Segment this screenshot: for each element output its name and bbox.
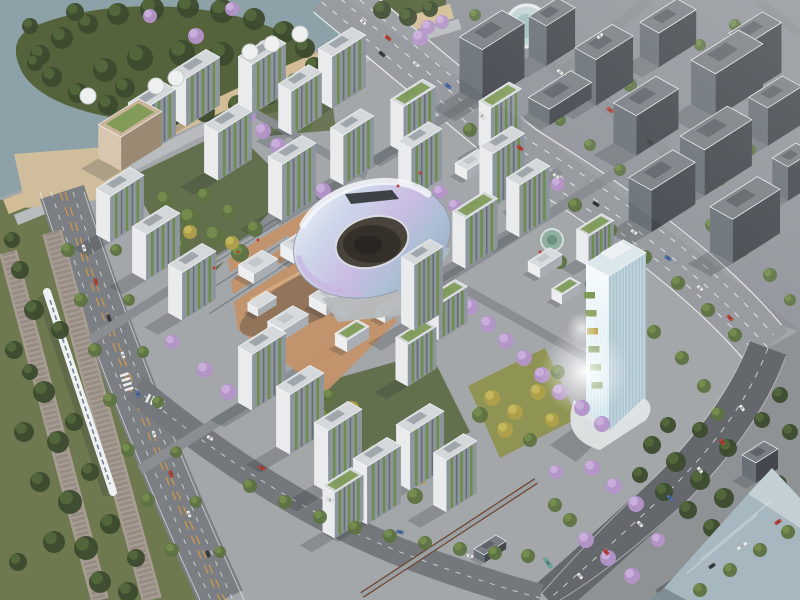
facade-green-strip bbox=[452, 296, 455, 330]
residential-tower-sw-face bbox=[168, 265, 182, 321]
tree-highlight bbox=[422, 21, 430, 29]
tree-highlight bbox=[552, 178, 560, 186]
circular-garden-center bbox=[547, 235, 557, 245]
facade-green-strip bbox=[348, 484, 351, 528]
facade-green-strip bbox=[304, 152, 306, 206]
park-tree bbox=[4, 232, 20, 248]
park-tree bbox=[74, 536, 98, 560]
facade-green-strip bbox=[191, 76, 194, 122]
facade-green-strip bbox=[486, 206, 488, 254]
tree-highlight bbox=[434, 186, 442, 194]
red-signage-accent bbox=[397, 185, 400, 188]
tree-highlight bbox=[419, 537, 427, 545]
residential-tower-sw-face bbox=[238, 347, 252, 411]
park-tree bbox=[5, 341, 23, 359]
street-tree bbox=[110, 244, 122, 256]
facade-green-strip bbox=[164, 98, 166, 142]
tree-highlight bbox=[256, 124, 265, 133]
street-tree bbox=[123, 294, 135, 306]
tree-highlight bbox=[704, 520, 714, 530]
facade-green-strip bbox=[427, 257, 430, 321]
tree-highlight bbox=[680, 502, 690, 512]
facade-green-strip bbox=[202, 69, 205, 115]
tree-highlight bbox=[104, 394, 112, 402]
residential-tower-sw-face bbox=[204, 125, 218, 181]
street-tree bbox=[222, 204, 238, 220]
facade-green-strip bbox=[529, 180, 531, 230]
facade-green-strip bbox=[357, 127, 360, 175]
park-tree bbox=[43, 531, 65, 553]
tree-highlight bbox=[633, 468, 642, 477]
tree-highlight bbox=[423, 2, 432, 11]
park-tree bbox=[399, 8, 417, 26]
facade-green-strip bbox=[448, 299, 450, 333]
park-tree bbox=[93, 58, 117, 82]
tree-highlight bbox=[531, 385, 540, 394]
facade-green-strip bbox=[367, 121, 370, 169]
facade-green-strip bbox=[339, 490, 342, 534]
facade-green-strip bbox=[337, 54, 340, 104]
facade-green-strip bbox=[394, 450, 397, 506]
facade-green-strip bbox=[426, 334, 428, 374]
tree-highlight bbox=[575, 401, 584, 410]
park-tree bbox=[66, 3, 84, 21]
facade-green-strip bbox=[306, 385, 309, 443]
tree-highlight bbox=[128, 550, 138, 560]
facade-green-strip bbox=[151, 232, 154, 276]
masterplan-aerial-rendering bbox=[0, 0, 800, 600]
street-tree bbox=[165, 543, 179, 557]
tree-highlight bbox=[95, 59, 108, 72]
facade-green-strip bbox=[293, 158, 295, 212]
street-tree bbox=[463, 123, 477, 137]
facade-green-strip bbox=[418, 263, 421, 327]
street-tree bbox=[141, 493, 155, 507]
tree-highlight bbox=[454, 543, 462, 551]
tree-highlight bbox=[226, 3, 234, 11]
tree-highlight bbox=[481, 317, 490, 326]
tree-highlight bbox=[23, 365, 32, 374]
tree-highlight bbox=[6, 342, 16, 352]
facade-green-strip bbox=[423, 260, 425, 324]
facade-green-strip bbox=[425, 140, 428, 188]
street-tree bbox=[584, 139, 596, 151]
street-tree bbox=[247, 221, 263, 237]
street-tree bbox=[711, 407, 725, 421]
residential-tower-sw-face bbox=[276, 387, 290, 455]
tree-highlight bbox=[470, 10, 477, 17]
autumn-tree bbox=[225, 236, 239, 250]
facade-green-strip bbox=[389, 454, 391, 510]
facade-green-strip bbox=[115, 194, 118, 238]
tree-highlight bbox=[585, 461, 594, 470]
street-tree bbox=[407, 488, 423, 504]
tree-highlight bbox=[546, 414, 554, 422]
street-tree bbox=[723, 563, 737, 577]
street-tree bbox=[523, 433, 537, 447]
street-tree bbox=[383, 529, 397, 543]
tree-highlight bbox=[473, 408, 482, 417]
facade-green-strip bbox=[378, 460, 380, 516]
park-tree bbox=[98, 95, 118, 115]
aerial-render-stage bbox=[0, 0, 800, 600]
street-tree bbox=[763, 268, 777, 282]
street-tree bbox=[614, 164, 626, 176]
tree-highlight bbox=[754, 544, 762, 552]
park-tree bbox=[81, 463, 99, 481]
facade-green-strip bbox=[503, 148, 505, 200]
facade-green-strip bbox=[363, 124, 365, 172]
facade-green-strip bbox=[344, 487, 346, 531]
facade-green-strip bbox=[173, 218, 176, 262]
red-signage-accent bbox=[539, 251, 542, 254]
facade-green-strip bbox=[353, 482, 355, 526]
park-tree bbox=[42, 67, 62, 87]
park-tree bbox=[47, 431, 69, 453]
tree-highlight bbox=[16, 423, 27, 434]
tree-highlight bbox=[314, 511, 322, 519]
tree-highlight bbox=[223, 205, 232, 214]
tree-highlight bbox=[661, 418, 670, 427]
tree-highlight bbox=[66, 414, 76, 424]
tree-highlight bbox=[198, 189, 207, 198]
facade-green-strip bbox=[309, 148, 312, 202]
residential-tower-sw-face bbox=[401, 258, 414, 331]
facade-green-strip bbox=[383, 457, 386, 513]
facade-green-strip bbox=[295, 392, 298, 450]
jacaranda-tree bbox=[594, 416, 610, 432]
tree-highlight bbox=[248, 222, 257, 231]
tree-highlight bbox=[144, 10, 152, 18]
tree-highlight bbox=[729, 329, 737, 337]
street-tree bbox=[88, 343, 102, 357]
tree-highlight bbox=[384, 530, 392, 538]
facade-green-strip bbox=[357, 479, 360, 523]
tree-highlight bbox=[45, 532, 57, 544]
tree-highlight bbox=[773, 388, 782, 397]
red-signage-accent bbox=[237, 251, 240, 254]
facade-green-strip bbox=[274, 342, 276, 396]
tree-highlight bbox=[785, 295, 792, 302]
tree-highlight bbox=[120, 583, 131, 594]
tree-highlight bbox=[702, 304, 710, 312]
park-tree bbox=[107, 3, 129, 25]
tree-highlight bbox=[91, 572, 103, 584]
facade-green-strip bbox=[274, 52, 276, 100]
park-tree bbox=[9, 553, 27, 571]
tree-highlight bbox=[522, 550, 530, 558]
facade-green-strip bbox=[301, 86, 303, 128]
ring-arena-pit bbox=[354, 236, 382, 254]
jacaranda-tree bbox=[651, 533, 665, 547]
facade-green-strip bbox=[456, 455, 458, 505]
facade-green-strip bbox=[435, 134, 438, 182]
tree-highlight bbox=[52, 322, 62, 332]
tree-highlight bbox=[245, 9, 257, 21]
facade-green-strip bbox=[432, 420, 434, 476]
facade-green-strip bbox=[198, 263, 201, 309]
tree-highlight bbox=[166, 544, 174, 552]
park-tree bbox=[772, 387, 788, 403]
jacaranda-tree bbox=[220, 384, 236, 400]
tree-highlight bbox=[607, 479, 616, 488]
tree-highlight bbox=[129, 46, 143, 60]
tree-highlight bbox=[75, 294, 83, 302]
tree-highlight bbox=[275, 22, 287, 34]
tree-highlight bbox=[413, 31, 422, 40]
tree-highlight bbox=[226, 237, 234, 245]
tree-highlight bbox=[5, 233, 14, 242]
street-tree bbox=[701, 303, 715, 317]
street-tree bbox=[697, 379, 711, 393]
tree-highlight bbox=[12, 262, 22, 272]
park-tree bbox=[373, 1, 391, 19]
jacaranda-tree bbox=[435, 15, 449, 29]
facade-green-strip bbox=[234, 123, 237, 169]
facade-green-strip bbox=[461, 291, 464, 325]
beach-canopy-umbrella bbox=[264, 36, 280, 52]
park-tree bbox=[33, 381, 55, 403]
residential-tower-sw-face bbox=[268, 157, 282, 221]
tree-highlight bbox=[111, 245, 118, 252]
park-tree bbox=[754, 412, 770, 428]
autumn-tree bbox=[545, 413, 559, 427]
tree-highlight bbox=[783, 425, 792, 434]
street-tree bbox=[781, 525, 795, 539]
park-tree bbox=[243, 8, 265, 30]
facade-green-strip bbox=[162, 225, 165, 269]
tree-highlight bbox=[10, 554, 20, 564]
street-tree bbox=[693, 583, 707, 597]
tree-highlight bbox=[221, 385, 230, 394]
tree-highlight bbox=[138, 347, 145, 354]
facade-green-strip bbox=[298, 155, 301, 209]
tree-highlight bbox=[109, 4, 121, 16]
facade-green-strip bbox=[470, 216, 473, 264]
tree-highlight bbox=[100, 96, 111, 107]
tree-highlight bbox=[215, 547, 222, 554]
facade-green-strip bbox=[263, 348, 265, 402]
tree-highlight bbox=[517, 351, 526, 360]
facade-green-strip bbox=[412, 342, 415, 382]
street-tree bbox=[121, 443, 135, 457]
tree-highlight bbox=[668, 453, 679, 464]
tree-highlight bbox=[279, 496, 287, 504]
street-tree bbox=[152, 396, 164, 408]
street-tree bbox=[784, 294, 796, 306]
tree-highlight bbox=[585, 140, 592, 147]
park-tree bbox=[115, 78, 135, 98]
jacaranda-tree bbox=[225, 2, 239, 16]
facade-green-strip bbox=[533, 177, 536, 227]
facade-green-strip bbox=[430, 331, 433, 371]
jacaranda-tree bbox=[480, 316, 496, 332]
facade-green-strip bbox=[157, 228, 159, 272]
facade-green-strip bbox=[168, 222, 170, 266]
facade-green-strip bbox=[213, 62, 216, 108]
facade-green-strip bbox=[415, 430, 418, 486]
tree-highlight bbox=[549, 499, 557, 507]
facade-green-strip bbox=[460, 452, 463, 502]
residential-tower-sw-face bbox=[278, 84, 291, 135]
tree-highlight bbox=[648, 326, 656, 334]
tree-highlight bbox=[60, 491, 73, 504]
jacaranda-tree bbox=[412, 30, 428, 46]
tree-highlight bbox=[316, 184, 325, 193]
tree-highlight bbox=[171, 41, 185, 55]
facade-green-strip bbox=[132, 184, 134, 228]
street-tree bbox=[671, 276, 685, 290]
facade-green-strip bbox=[229, 126, 231, 172]
tree-highlight bbox=[271, 139, 280, 148]
street-tree bbox=[348, 521, 362, 535]
street-tree bbox=[418, 536, 432, 550]
park-tree bbox=[127, 45, 153, 71]
residential-tower-sw-face bbox=[452, 212, 465, 269]
tree-highlight bbox=[198, 363, 207, 372]
tree-highlight bbox=[189, 29, 198, 38]
tree-highlight bbox=[191, 497, 198, 504]
facade-green-strip bbox=[476, 213, 478, 261]
tree-highlight bbox=[349, 522, 357, 530]
park-tree bbox=[666, 452, 686, 472]
facade-green-strip bbox=[451, 458, 454, 508]
tree-highlight bbox=[724, 564, 732, 572]
facade-green-strip bbox=[311, 80, 313, 122]
residential-tower-sw-face bbox=[433, 453, 446, 512]
facade-green-strip bbox=[359, 40, 362, 90]
jacaranda-tree bbox=[143, 9, 157, 23]
facade-green-strip bbox=[315, 77, 318, 119]
jacaranda-tree bbox=[516, 350, 532, 366]
tree-highlight bbox=[656, 484, 666, 494]
tree-highlight bbox=[122, 444, 130, 452]
tree-highlight bbox=[166, 336, 174, 344]
vehicle-glass bbox=[469, 555, 472, 558]
tree-highlight bbox=[755, 413, 764, 422]
tree-highlight bbox=[117, 79, 128, 90]
park-tree bbox=[22, 18, 38, 34]
beach-canopy-umbrella bbox=[148, 78, 164, 94]
jacaranda-tree bbox=[498, 333, 514, 349]
residential-tower-sw-face bbox=[314, 423, 328, 493]
tree-highlight bbox=[324, 390, 332, 398]
tree-highlight bbox=[89, 344, 97, 352]
tree-highlight bbox=[782, 526, 790, 534]
tree-highlight bbox=[498, 423, 507, 432]
park-tree bbox=[58, 490, 82, 514]
park-tree bbox=[422, 1, 438, 17]
park-tree bbox=[51, 321, 69, 339]
park-tree bbox=[632, 467, 648, 483]
street-tree bbox=[753, 543, 767, 557]
red-signage-accent bbox=[419, 172, 422, 175]
street-tree bbox=[170, 446, 182, 458]
red-signage-accent bbox=[257, 239, 260, 242]
facade-green-strip bbox=[187, 270, 190, 316]
facade-green-strip bbox=[470, 446, 473, 496]
tree-highlight bbox=[182, 209, 193, 220]
street-tree bbox=[243, 479, 257, 493]
tree-highlight bbox=[550, 466, 558, 474]
tree-highlight bbox=[153, 397, 160, 404]
street-tree bbox=[214, 546, 226, 558]
park-tree bbox=[51, 27, 73, 49]
tree-highlight bbox=[595, 417, 604, 426]
facade-green-strip bbox=[208, 66, 210, 112]
street-tree bbox=[568, 198, 582, 212]
street-tree bbox=[74, 293, 88, 307]
tree-highlight bbox=[489, 547, 497, 555]
street-tree bbox=[313, 510, 327, 524]
tree-highlight bbox=[53, 28, 65, 40]
tree-highlight bbox=[102, 515, 113, 526]
jacaranda-tree bbox=[578, 532, 594, 548]
facade-green-strip bbox=[257, 62, 260, 110]
tree-highlight bbox=[694, 584, 702, 592]
street-tree bbox=[197, 188, 213, 204]
facade-green-strip bbox=[268, 55, 271, 103]
street-tree bbox=[521, 549, 535, 563]
tree-highlight bbox=[142, 494, 150, 502]
street-tree bbox=[103, 393, 117, 407]
tree-highlight bbox=[44, 68, 55, 79]
street-tree bbox=[278, 495, 292, 509]
facade-green-strip bbox=[421, 426, 423, 482]
jacaranda-tree bbox=[549, 465, 563, 479]
tree-highlight bbox=[26, 301, 37, 312]
facade-green-strip bbox=[268, 345, 271, 399]
residential-tower-sw-face bbox=[330, 128, 343, 185]
street-tree bbox=[137, 346, 149, 358]
facade-green-strip bbox=[137, 180, 140, 224]
street-tree bbox=[61, 243, 75, 257]
facade-green-strip bbox=[437, 251, 440, 315]
facade-green-strip bbox=[539, 174, 541, 224]
residential-tower-sw-face bbox=[396, 338, 408, 387]
facade-green-strip bbox=[263, 58, 265, 106]
facade-green-strip bbox=[443, 302, 446, 336]
red-signage-accent bbox=[213, 267, 216, 270]
tree-highlight bbox=[615, 165, 622, 172]
tree-highlight bbox=[698, 380, 706, 388]
facade-green-strip bbox=[257, 352, 260, 406]
jacaranda-tree bbox=[188, 28, 204, 44]
street-tree bbox=[548, 498, 562, 512]
park-tree bbox=[127, 549, 145, 567]
tree-highlight bbox=[625, 569, 634, 578]
park-tree bbox=[22, 364, 38, 380]
autumn-tree bbox=[484, 390, 500, 406]
jacaranda-tree bbox=[165, 335, 179, 349]
jacaranda-tree bbox=[628, 496, 644, 512]
tree-highlight bbox=[569, 199, 577, 207]
tree-highlight bbox=[499, 334, 508, 343]
facade-green-strip bbox=[245, 116, 248, 162]
tree-highlight bbox=[524, 434, 532, 442]
street-tree bbox=[472, 407, 488, 423]
park-tree bbox=[782, 424, 798, 440]
tree-highlight bbox=[62, 244, 70, 252]
facade-green-strip bbox=[121, 190, 123, 234]
facade-green-strip bbox=[466, 449, 468, 499]
street-tree bbox=[323, 389, 337, 403]
facade-green-strip bbox=[126, 187, 129, 231]
jacaranda-tree bbox=[197, 362, 213, 378]
tree-highlight bbox=[436, 16, 444, 24]
park-tree bbox=[100, 514, 120, 534]
tree-highlight bbox=[449, 200, 457, 208]
